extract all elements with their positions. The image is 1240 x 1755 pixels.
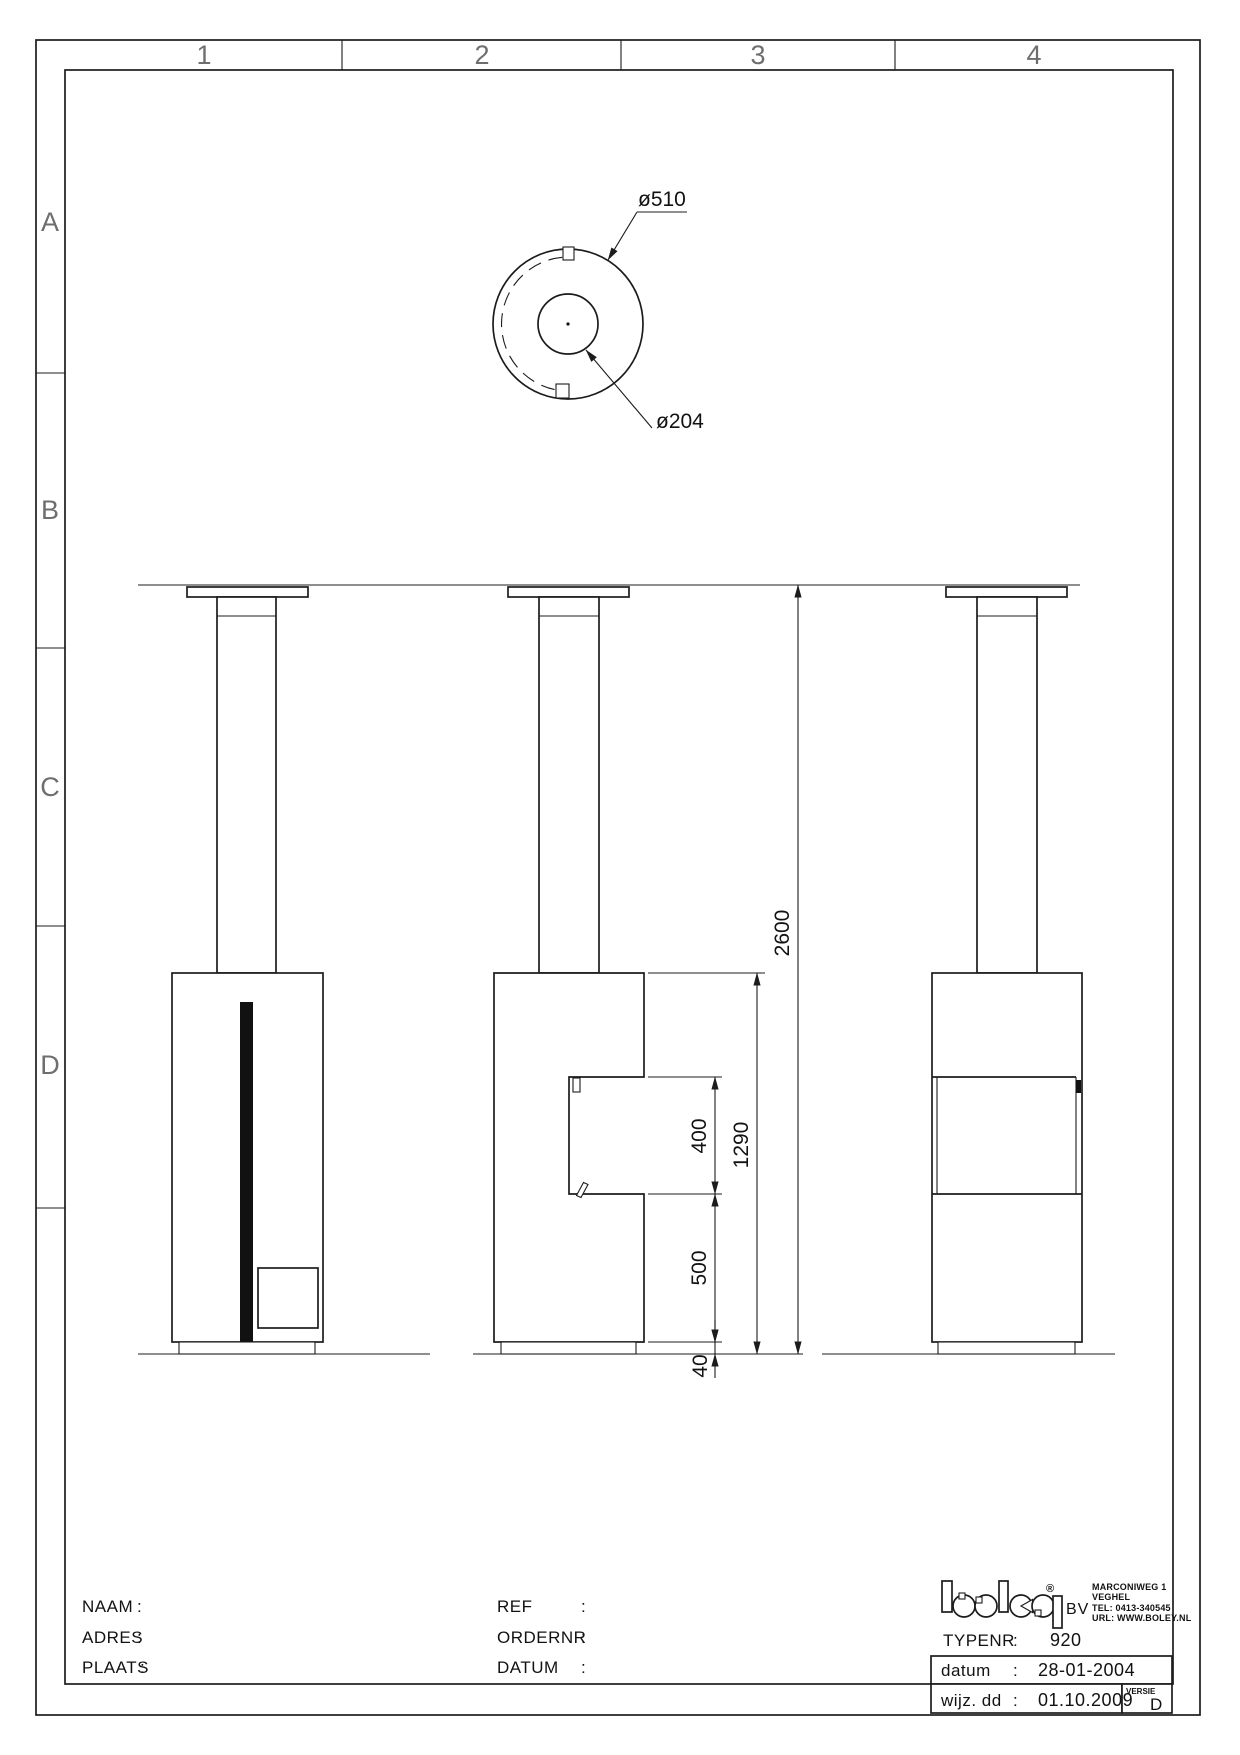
rev-row-value: 01.10.2009 <box>1038 1690 1133 1710</box>
clamp-notch-bottom <box>556 384 569 398</box>
hinge-top <box>573 1078 580 1092</box>
logo-notch-y <box>1035 1610 1041 1616</box>
grid-column-label-4: 4 <box>1026 40 1041 70</box>
flue-pipe <box>217 597 276 973</box>
adres-colon: : <box>137 1628 142 1647</box>
front-view <box>138 587 430 1354</box>
center-mark <box>566 322 569 325</box>
address-line: VEGHEL <box>1092 1592 1131 1602</box>
door-glass-strip <box>240 1002 253 1342</box>
typenr-colon: : <box>1013 1631 1018 1650</box>
hinge-tick <box>1076 1080 1081 1093</box>
dia-label-outer: ø510 <box>638 188 686 211</box>
logo-notch-b <box>959 1593 965 1599</box>
rev-row-colon: : <box>1013 1691 1018 1710</box>
ash-door <box>258 1268 318 1328</box>
datum-label: DATUM <box>497 1658 559 1677</box>
company-address: MARCONIWEG 1 VEGHEL TEL: 0413-340545 URL… <box>1092 1582 1192 1623</box>
plinth <box>501 1342 636 1354</box>
flue-pipe <box>977 597 1037 973</box>
ordernr-colon: : <box>581 1628 586 1647</box>
dim-label-1290: 1290 <box>730 1122 753 1169</box>
address-line: URL: WWW.BOLEY.NL <box>1092 1613 1192 1623</box>
technical-drawing: 1 2 3 4 A B C D ø510 ø204 <box>0 0 1240 1755</box>
naam-colon: : <box>137 1597 142 1616</box>
rev-row-label: wijz. dd <box>940 1691 1002 1710</box>
naam-label: NAAM <box>82 1597 133 1616</box>
ceiling-flange <box>508 587 629 597</box>
grid-row-label-c: C <box>40 772 60 802</box>
grid-column-label-1: 1 <box>196 40 211 70</box>
rear-view <box>822 587 1115 1354</box>
logo-bar-y <box>1053 1596 1062 1628</box>
address-line: MARCONIWEG 1 <box>1092 1582 1166 1592</box>
ceiling-flange <box>187 587 308 597</box>
dim-label-400: 400 <box>688 1118 711 1153</box>
registered-mark: ® <box>1046 1583 1054 1595</box>
logo-notch-o <box>976 1597 982 1603</box>
stove-body-notched <box>494 973 644 1342</box>
date-row-colon: : <box>1013 1661 1018 1680</box>
logo-bar-l <box>999 1581 1008 1612</box>
grid-column-label-2: 2 <box>474 40 489 70</box>
date-row-label: datum <box>941 1661 991 1680</box>
ceiling-flange <box>946 587 1067 597</box>
liner-dashed-arc <box>502 257 563 390</box>
grid-column-label-3: 3 <box>750 40 765 70</box>
logo-bar-b <box>942 1581 952 1612</box>
typenr-value: 920 <box>1050 1630 1082 1650</box>
flue-top-view: ø510 ø204 <box>493 188 704 433</box>
date-row-value: 28-01-2004 <box>1038 1660 1135 1680</box>
adres-label: ADRES <box>82 1628 143 1647</box>
versie-value: D <box>1150 1695 1163 1714</box>
side-view <box>473 587 803 1354</box>
title-block: NAAM : ADRES : PLAATS : REF : ORDERNR : … <box>82 1581 1192 1714</box>
flue-pipe <box>539 597 599 973</box>
boley-logo: ® BV <box>942 1581 1089 1628</box>
ref-colon: : <box>581 1597 586 1616</box>
bv-suffix: BV <box>1066 1601 1089 1618</box>
stove-body <box>932 973 1082 1342</box>
dim-label-2600: 2600 <box>771 910 794 957</box>
dimensions: 400 500 40 1290 2600 <box>648 585 798 1378</box>
plinth <box>938 1342 1075 1354</box>
address-line: TEL: 0413-340545 <box>1092 1603 1171 1613</box>
plinth <box>179 1342 315 1354</box>
typenr-label: TYPENR <box>943 1631 1015 1650</box>
grid-row-label-d: D <box>40 1050 60 1080</box>
dim-label-500: 500 <box>688 1250 711 1285</box>
grid-row-label-a: A <box>41 207 59 237</box>
plaats-colon: : <box>140 1658 145 1677</box>
clamp-notch-top <box>563 247 574 260</box>
plaats-label: PLAATS <box>82 1658 149 1677</box>
dim-label-40: 40 <box>689 1354 712 1377</box>
dia-label-inner: ø204 <box>656 410 704 433</box>
leader-line-inner-dia <box>586 350 652 428</box>
ref-label: REF <box>497 1597 533 1616</box>
ordernr-label: ORDERNR <box>497 1628 586 1647</box>
datum-colon: : <box>581 1658 586 1677</box>
leader-line-outer-dia <box>608 212 637 260</box>
drawing-sheet: 1 2 3 4 A B C D ø510 ø204 <box>0 0 1240 1755</box>
grid-row-label-b: B <box>41 495 59 525</box>
